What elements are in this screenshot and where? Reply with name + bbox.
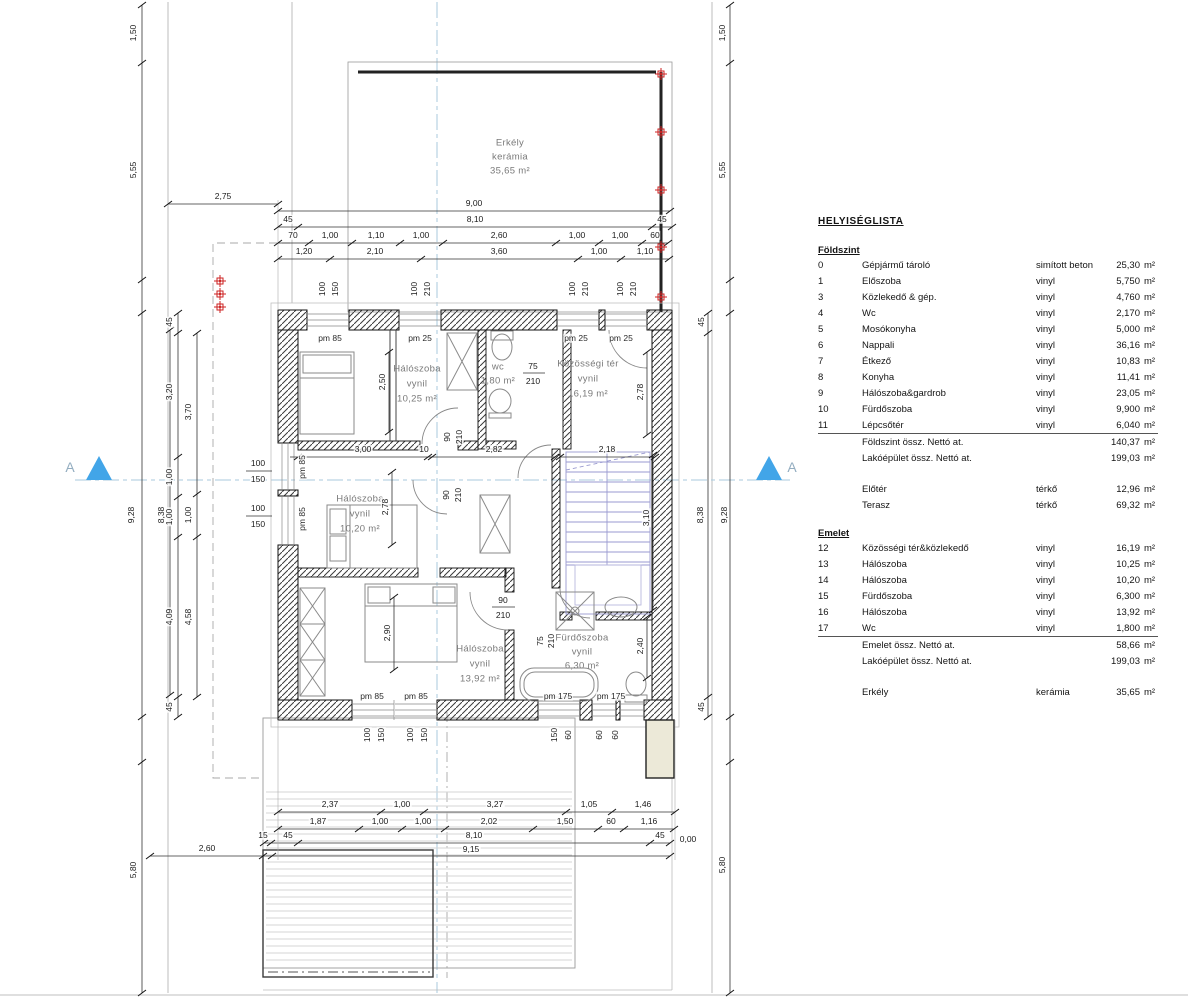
- room-area: 10,20: [1100, 575, 1140, 586]
- room-area: 35,65: [1100, 687, 1140, 698]
- bed-icon: [300, 352, 354, 434]
- room-area: 58,66: [1100, 640, 1140, 651]
- room-list-row: 13Hálószobavinyl10,25m²: [818, 556, 1158, 572]
- room-area-unit: m²: [1140, 308, 1158, 319]
- room-material: vinyl: [1036, 340, 1100, 351]
- room-list-row: 14Hálószobavinyl10,20m²: [818, 572, 1158, 588]
- room-name: Nappali: [862, 340, 1036, 351]
- room-number: 10: [818, 404, 862, 415]
- room-list-row: Előtértérkő12,96m²: [818, 481, 1158, 497]
- room-list-total-row: Földszint össz. Nettó at.140,37m²: [818, 434, 1158, 450]
- room-material: térkő: [1036, 500, 1100, 511]
- sink-icon: [489, 389, 511, 418]
- room-name: Előszoba: [862, 276, 1036, 287]
- room-list-row: 5Mosókonyhavinyl5,000m²: [818, 321, 1158, 337]
- partition-lines: [390, 330, 396, 441]
- room-area-unit: m²: [1140, 437, 1158, 448]
- room-area-unit: m²: [1140, 453, 1158, 464]
- bathtub-icon: [520, 668, 598, 701]
- room-number: 11: [818, 420, 862, 431]
- room-material: térkő: [1036, 484, 1100, 495]
- room-number: 13: [818, 559, 862, 570]
- room-area: 69,32: [1100, 500, 1140, 511]
- room-list-title: HELYISÉGLISTA: [818, 216, 1158, 227]
- wardrobe-icon: [300, 588, 325, 624]
- room-area: 1,800: [1100, 623, 1140, 634]
- room-list-section: Erkélykerámia35,65m²: [818, 684, 1158, 700]
- room-list-row: Erkélykerámia35,65m²: [818, 684, 1158, 700]
- room-name: Lépcsőtér: [862, 420, 1036, 431]
- room-name: Hálószoba: [862, 575, 1036, 586]
- room-area: 140,37: [1100, 437, 1140, 448]
- room-name: Földszint össz. Nettó at.: [862, 437, 1036, 448]
- room-area-unit: m²: [1140, 388, 1158, 399]
- room-material: vinyl: [1036, 591, 1100, 602]
- room-list-row: 8Konyhavinyl11,41m²: [818, 369, 1158, 385]
- wardrobe-icon: [300, 624, 325, 660]
- room-area-unit: m²: [1140, 543, 1158, 554]
- room-area-unit: m²: [1140, 591, 1158, 602]
- room-number: 1: [818, 276, 862, 287]
- room-number: 14: [818, 575, 862, 586]
- room-area-unit: m²: [1140, 687, 1158, 698]
- room-name: Hálószoba&gardrob: [862, 388, 1036, 399]
- room-list-section: Emelet12Közösségi tér&közlekedővinyl16,1…: [818, 528, 1158, 669]
- wardrobe-icon: [447, 333, 477, 390]
- room-area: 5,750: [1100, 276, 1140, 287]
- room-name: Közlekedő & gép.: [862, 292, 1036, 303]
- room-material: vinyl: [1036, 607, 1100, 618]
- room-area-unit: m²: [1140, 559, 1158, 570]
- room-area: 9,900: [1100, 404, 1140, 415]
- room-list-section-header: Emelet: [818, 528, 1158, 539]
- balcony: [348, 62, 672, 312]
- room-name: Terasz: [862, 500, 1036, 511]
- room-name: Közösségi tér&közlekedő: [862, 543, 1036, 554]
- room-material: vinyl: [1036, 404, 1100, 415]
- room-area: 6,040: [1100, 420, 1140, 431]
- room-name: Erkély: [862, 687, 1036, 698]
- room-area: 10,25: [1100, 559, 1140, 570]
- room-list-total-row: Lakóépület össz. Nettó at.199,03m²: [818, 653, 1158, 669]
- room-name: Wc: [862, 623, 1036, 634]
- room-number: 3: [818, 292, 862, 303]
- room-number: 0: [818, 260, 862, 271]
- room-list-table: HELYISÉGLISTA Földszint0Gépjármű tárolós…: [818, 216, 1158, 700]
- room-area: 10,83: [1100, 356, 1140, 367]
- room-area-unit: m²: [1140, 372, 1158, 383]
- room-area-unit: m²: [1140, 276, 1158, 287]
- room-name: Étkező: [862, 356, 1036, 367]
- room-area-unit: m²: [1140, 607, 1158, 618]
- room-area: 11,41: [1100, 372, 1140, 383]
- room-area: 12,96: [1100, 484, 1140, 495]
- room-list-row: 12Közösségi tér&közlekedővinyl16,19m²: [818, 540, 1158, 556]
- room-area-unit: m²: [1140, 640, 1158, 651]
- room-list-row: 4Wcvinyl2,170m²: [818, 305, 1158, 321]
- building-outline: [271, 303, 679, 727]
- room-area-unit: m²: [1140, 656, 1158, 667]
- room-material: vinyl: [1036, 276, 1100, 287]
- room-list-row: 1Előszobavinyl5,750m²: [818, 273, 1158, 289]
- room-material: kerámia: [1036, 687, 1100, 698]
- room-list-row: Terasztérkő69,32m²: [818, 497, 1158, 513]
- room-area: 199,03: [1100, 656, 1140, 667]
- room-name: Gépjármű tároló: [862, 260, 1036, 271]
- wardrobe-icon: [300, 660, 325, 696]
- room-list-row: 10Fürdőszobavinyl9,900m²: [818, 401, 1158, 417]
- room-area: 25,30: [1100, 260, 1140, 271]
- room-number: 8: [818, 372, 862, 383]
- room-list-total-row: Emelet össz. Nettó at.58,66m²: [818, 637, 1158, 653]
- room-number: 17: [818, 623, 862, 634]
- room-list-total-row: Lakóépület össz. Nettó at.199,03m²: [818, 450, 1158, 466]
- room-area-unit: m²: [1140, 324, 1158, 335]
- room-area-unit: m²: [1140, 404, 1158, 415]
- room-list-section: Előtértérkő12,96m²Terasztérkő69,32m²: [818, 481, 1158, 513]
- room-list-section: Földszint0Gépjármű tárolósimított beton2…: [818, 245, 1158, 466]
- room-name: Fürdőszoba: [862, 404, 1036, 415]
- room-number: 16: [818, 607, 862, 618]
- room-material: simított beton: [1036, 260, 1100, 271]
- room-material: vinyl: [1036, 372, 1100, 383]
- room-name: Konyha: [862, 372, 1036, 383]
- room-number: 12: [818, 543, 862, 554]
- room-area: 6,300: [1100, 591, 1140, 602]
- extension-lines: [278, 200, 675, 860]
- room-material: vinyl: [1036, 324, 1100, 335]
- room-material: vinyl: [1036, 623, 1100, 634]
- survey-markers: [214, 68, 667, 313]
- room-name: Emelet össz. Nettó at.: [862, 640, 1036, 651]
- room-area-unit: m²: [1140, 260, 1158, 271]
- wardrobe-icon: [480, 495, 510, 553]
- bed-icon: [327, 505, 417, 568]
- room-name: Fürdőszoba: [862, 591, 1036, 602]
- entry-step-block: [646, 720, 674, 778]
- room-area: 23,05: [1100, 388, 1140, 399]
- room-number: 15: [818, 591, 862, 602]
- room-list-row: 15Fürdőszobavinyl6,300m²: [818, 588, 1158, 604]
- room-area: 199,03: [1100, 453, 1140, 464]
- exterior-walls: [278, 310, 672, 720]
- room-area-unit: m²: [1140, 575, 1158, 586]
- room-area: 4,760: [1100, 292, 1140, 303]
- room-material: vinyl: [1036, 356, 1100, 367]
- room-area-unit: m²: [1140, 356, 1158, 367]
- room-area: 5,000: [1100, 324, 1140, 335]
- room-area-unit: m²: [1140, 420, 1158, 431]
- floorplan-canvas: Erkélykerámia35,65 m²Hálószobavynil10,25…: [0, 0, 1188, 1000]
- room-area-unit: m²: [1140, 484, 1158, 495]
- room-name: Lakóépület össz. Nettó at.: [862, 656, 1036, 667]
- room-material: vinyl: [1036, 559, 1100, 570]
- room-list-row: 17Wcvinyl1,800m²: [818, 620, 1158, 636]
- room-list-row: 11Lépcsőtérvinyl6,040m²: [818, 417, 1158, 433]
- room-material: vinyl: [1036, 575, 1100, 586]
- room-material: vinyl: [1036, 292, 1100, 303]
- room-number: 6: [818, 340, 862, 351]
- room-name: Hálószoba: [862, 607, 1036, 618]
- room-material: vinyl: [1036, 388, 1100, 399]
- terrace: [263, 718, 672, 990]
- room-name: Lakóépület össz. Nettó at.: [862, 453, 1036, 464]
- bed-icon: [365, 584, 457, 662]
- room-area: 16,19: [1100, 543, 1140, 554]
- room-area-unit: m²: [1140, 292, 1158, 303]
- room-number: 4: [818, 308, 862, 319]
- room-list-row: 16Hálószobavinyl13,92m²: [818, 604, 1158, 620]
- room-area: 13,92: [1100, 607, 1140, 618]
- toilet-icon: [625, 672, 647, 702]
- stairs: [566, 452, 650, 614]
- room-area: 36,16: [1100, 340, 1140, 351]
- room-list-row: 6Nappalivinyl36,16m²: [818, 337, 1158, 353]
- room-material: vinyl: [1036, 420, 1100, 431]
- room-name: Mosókonyha: [862, 324, 1036, 335]
- room-material: vinyl: [1036, 308, 1100, 319]
- room-list-row: 7Étkezővinyl10,83m²: [818, 353, 1158, 369]
- furniture: [300, 331, 647, 702]
- section-marker-icon: [86, 456, 782, 480]
- toilet-icon: [491, 331, 513, 360]
- room-area-unit: m²: [1140, 623, 1158, 634]
- room-name: Wc: [862, 308, 1036, 319]
- room-area: 2,170: [1100, 308, 1140, 319]
- room-number: 9: [818, 388, 862, 399]
- windows: [282, 314, 647, 720]
- room-name: Előtér: [862, 484, 1036, 495]
- room-number: 7: [818, 356, 862, 367]
- room-area-unit: m²: [1140, 500, 1158, 511]
- room-name: Hálószoba: [862, 559, 1036, 570]
- room-material: vinyl: [1036, 543, 1100, 554]
- room-list-section-header: Földszint: [818, 245, 1158, 256]
- room-list-row: 3Közlekedő & gép.vinyl4,760m²: [818, 289, 1158, 305]
- room-area-unit: m²: [1140, 340, 1158, 351]
- room-number: 5: [818, 324, 862, 335]
- room-list-row: 9Hálószoba&gardrobvinyl23,05m²: [818, 385, 1158, 401]
- room-list-row: 0Gépjármű tárolósimított beton25,30m²: [818, 257, 1158, 273]
